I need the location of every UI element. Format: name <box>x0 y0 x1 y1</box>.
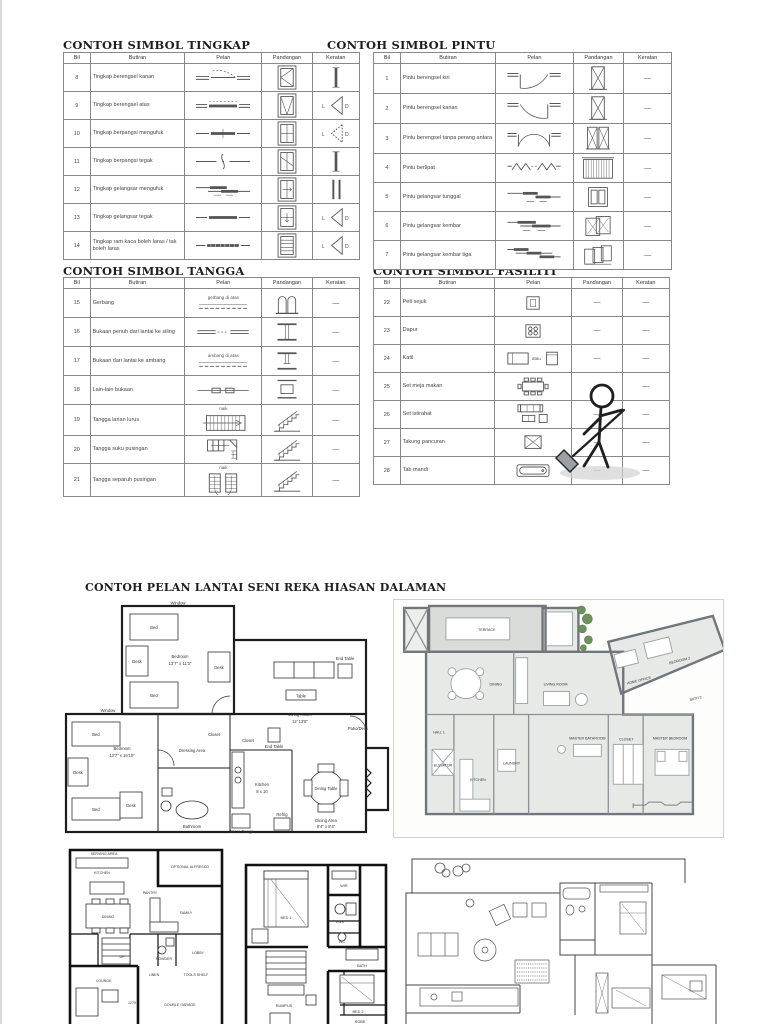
butiran-cell: Tingkap berengsel kanan <box>90 64 185 92</box>
header-row: BilButiranPelanPandanganKeratan <box>64 53 360 64</box>
svg-text:FAMILY: FAMILY <box>180 911 193 915</box>
butiran-cell: Gerbang <box>90 289 185 318</box>
table-row: 15Gerbanggerbang di atas— <box>64 289 360 318</box>
section-bar2-icon <box>321 178 351 201</box>
door-elev-slide1-icon <box>586 184 610 210</box>
svg-text:TOOLS SHELF: TOOLS SHELF <box>184 973 210 977</box>
door-elev-accordion-icon <box>581 155 615 181</box>
pelan-cell <box>185 92 262 120</box>
tingkap-heading: CONTOH SIMBOL TINGKAP <box>63 38 250 52</box>
pandangan-cell <box>262 436 312 464</box>
window-elev-casement-icon <box>276 65 298 90</box>
dash-value: — <box>574 299 619 306</box>
floorplan-house-upper: BED 1 WIR ENS WC BATH RUMPUS BED 2 ROBE … <box>240 855 392 1024</box>
column-header: Bil <box>374 278 401 289</box>
table-row: 2Pintu berengsel kanan— <box>374 94 672 124</box>
column-header: Keratan <box>312 278 359 289</box>
svg-text:D: D <box>345 104 349 110</box>
svg-text:8'4" x 8'4": 8'4" x 8'4" <box>317 824 336 829</box>
pelan-cell <box>496 183 573 212</box>
pelan-cell <box>496 154 573 183</box>
svg-text:Bed: Bed <box>150 625 158 630</box>
symbol-note: naik <box>219 465 227 470</box>
butiran-cell: Tangga suku pusingan <box>90 436 185 464</box>
dash-value: — <box>626 223 669 230</box>
pelan-cell: naik <box>185 464 262 497</box>
arch-elev-icon <box>274 290 300 316</box>
header-row: BilButiranPelanPandanganKeratan <box>374 53 672 64</box>
pelan-cell <box>185 318 262 347</box>
bil-cell: 12 <box>64 176 91 204</box>
svg-text:WC: WC <box>339 940 346 944</box>
svg-text:RUMPUS: RUMPUS <box>276 1004 293 1008</box>
keratan-cell: — <box>622 317 669 345</box>
keratan-cell: — <box>624 94 672 124</box>
svg-text:Closet: Closet <box>208 732 221 737</box>
pelan-cell <box>185 376 262 405</box>
svg-text:8 x 10: 8 x 10 <box>256 789 268 794</box>
column-header: Butiran <box>90 53 185 64</box>
svg-text:Desk: Desk <box>214 665 224 670</box>
bil-cell: 13 <box>64 204 91 232</box>
table-row: 20Tangga suku pusingan— <box>64 436 360 464</box>
bil-cell: 20 <box>64 436 91 464</box>
dash-value: — <box>315 417 357 424</box>
table-row: 7Pintu gelangsar kembar tiga— <box>374 241 672 270</box>
svg-text:Desk: Desk <box>73 770 83 775</box>
pelan-cell: ambang di atas <box>185 347 262 376</box>
svg-text:LAUNDRY: LAUNDRY <box>503 761 521 765</box>
svg-text:Dining Table: Dining Table <box>315 786 339 791</box>
table-row: 22Peti sejuk—— <box>374 289 670 317</box>
pandangan-cell <box>573 183 624 212</box>
table-row: 5Pintu gelangsar tunggal— <box>374 183 672 212</box>
document-page: CONTOH SIMBOL TINGKAP CONTOH SIMBOL PINT… <box>0 0 768 1024</box>
butiran-cell: Pintu gelangsar tunggal <box>400 183 495 212</box>
pelan-cell <box>496 241 573 270</box>
butiran-cell: Tingkap gelangsar mengufuk <box>90 176 185 204</box>
tangga-heading: CONTOH SIMBOL TANGGA <box>63 264 245 278</box>
dash-value: — <box>315 300 357 307</box>
svg-text:D: D <box>345 132 349 138</box>
pandangan-cell <box>573 94 624 124</box>
bil-cell: 8 <box>64 64 91 92</box>
pandangan-cell: — <box>572 289 622 317</box>
butiran-cell: Tingkap gelangsar tegak <box>90 204 185 232</box>
table-row: 12Tingkap gelangsar mengufuk <box>64 176 360 204</box>
opening-plan-icon <box>195 327 251 338</box>
plants <box>577 606 592 651</box>
bil-cell: 27 <box>374 429 401 457</box>
svg-text:LOBBY: LOBBY <box>192 951 205 955</box>
keratan-cell: — <box>624 124 672 154</box>
svg-text:MASTER BEDROOM: MASTER BEDROOM <box>653 736 687 740</box>
pandangan-cell <box>262 405 312 436</box>
svg-text:End Table: End Table <box>336 656 355 661</box>
keratan-cell: — <box>312 289 359 318</box>
bil-cell: 21 <box>64 464 91 497</box>
column-header: Butiran <box>400 278 495 289</box>
window-elev-tophung-icon <box>276 93 298 118</box>
column-header: Pelan <box>495 278 572 289</box>
column-header: Pandangan <box>573 53 624 64</box>
pelan-cell: gerbang di atas <box>185 289 262 318</box>
dash-value: — <box>574 327 619 334</box>
pandangan-cell <box>262 92 312 120</box>
bil-cell: 16 <box>64 318 91 347</box>
column-header: Pandangan <box>572 278 622 289</box>
column-header: Bil <box>64 278 91 289</box>
bil-cell: 28 <box>374 457 401 485</box>
svg-text:1270: 1270 <box>128 1001 136 1005</box>
butiran-cell: Tab mandi <box>400 457 495 485</box>
dashed-line-plan-icon <box>195 301 251 312</box>
window-casement-plan-icon <box>195 69 251 86</box>
svg-text:BED 1: BED 1 <box>281 916 292 920</box>
bil-cell: 6 <box>374 212 401 241</box>
svg-text:DINING: DINING <box>489 683 502 687</box>
keratan-cell: — <box>312 405 359 436</box>
pandangan-cell <box>262 204 312 232</box>
dash-value: — <box>315 358 357 365</box>
keratan-cell: LD <box>312 204 359 232</box>
column-header: Bil <box>64 53 91 64</box>
keratan-cell: — <box>624 212 672 241</box>
pelan-cell: naik <box>185 405 262 436</box>
butiran-cell: Pintu berengsel kiri <box>400 64 495 94</box>
door-elev-x-icon <box>588 65 608 92</box>
svg-text:Bedroom: Bedroom <box>172 654 190 659</box>
pelan-cell <box>185 176 262 204</box>
column-header: Pelan <box>496 53 573 64</box>
butiran-cell: Set meja makan <box>400 373 495 401</box>
svg-text:12' 13'8": 12' 13'8" <box>292 719 308 724</box>
tangga-symbol-table: BilButiranPelanPandanganKeratan15Gerbang… <box>63 277 360 497</box>
svg-text:LOUNGE: LOUNGE <box>96 979 112 983</box>
svg-text:Bathroom: Bathroom <box>183 824 202 829</box>
butiran-cell: Bukaan dari lantai ke ambang <box>90 347 185 376</box>
header-row: BilButiranPelanPandanganKeratan <box>374 278 670 289</box>
svg-text:Table: Table <box>296 694 307 699</box>
butiran-cell: Tingkap berengsel atas <box>90 92 185 120</box>
keratan-cell: LD <box>312 120 359 148</box>
table-row: 3Pintu berengsel tanpa perang antara— <box>374 124 672 154</box>
column-header: Pandangan <box>262 278 312 289</box>
keratan-cell <box>312 148 359 176</box>
butiran-cell: Lain-lain bukaan <box>90 376 185 405</box>
bil-cell: 11 <box>64 148 91 176</box>
bil-cell: 7 <box>374 241 401 270</box>
opening-sill-elev-icon <box>274 348 300 374</box>
door-swing-left-plan-icon <box>506 68 562 90</box>
svg-text:Desk: Desk <box>132 659 142 664</box>
svg-text:Dining Area: Dining Area <box>315 818 337 823</box>
section-swing-icon: LD <box>321 94 351 117</box>
butiran-cell: Tingkap berpangsi mengufuk <box>90 120 185 148</box>
column-header: Butiran <box>400 53 495 64</box>
pelan-cell <box>185 148 262 176</box>
pandangan-cell <box>262 232 312 260</box>
keratan-cell: — <box>624 154 672 183</box>
stairs-half-plan-icon <box>202 471 244 495</box>
table-row: 17Bukaan dari lantai ke ambangambang di … <box>64 347 360 376</box>
header-row: BilButiranPelanPandanganKeratan <box>64 278 360 289</box>
bil-cell: 17 <box>64 347 91 376</box>
svg-text:D: D <box>345 216 349 222</box>
column-header: Keratan <box>622 278 669 289</box>
pelan-cell <box>185 120 262 148</box>
svg-text:Window: Window <box>171 601 187 606</box>
table-row: 14Tingkap ram kaca boleh laras / tak bol… <box>64 232 360 260</box>
svg-text:MASTER BATHROOM: MASTER BATHROOM <box>569 736 605 740</box>
window-louvre-plan-icon <box>195 237 251 254</box>
dash-value: — <box>625 299 667 306</box>
dash-value: — <box>626 165 669 172</box>
pandangan-cell <box>573 212 624 241</box>
window-elev-pivot-v-icon <box>276 149 298 174</box>
butiran-cell: Peti sejuk <box>400 289 495 317</box>
pandangan-cell <box>573 241 624 270</box>
section-swing-icon: LD <box>321 234 351 257</box>
svg-text:ELEVATOR: ELEVATOR <box>434 763 453 767</box>
keratan-cell: — <box>312 436 359 464</box>
door-elev-x-icon <box>588 95 608 122</box>
door-elev-slide3-icon <box>583 242 613 268</box>
table-row: 6Pintu gelangsar kembar— <box>374 212 672 241</box>
balcony-plants <box>435 863 474 907</box>
butiran-cell: Tangga larian lurus <box>90 405 185 436</box>
window-elev-pivot-h-icon <box>276 121 298 146</box>
dash-value: — <box>626 75 669 82</box>
keratan-cell: — <box>624 64 672 94</box>
butiran-cell: Takung pancuran <box>400 429 495 457</box>
section-bar-icon <box>321 66 351 89</box>
stairs-straight-plan-icon <box>195 412 251 434</box>
door-slide-single-plan-icon <box>506 186 562 208</box>
table-row: 4Pintu berlipat— <box>374 154 672 183</box>
pelan-cell <box>495 289 572 317</box>
bil-cell: 14 <box>64 232 91 260</box>
bil-cell: 23 <box>374 317 401 345</box>
table-row: 1Pintu berengsel kiri— <box>374 64 672 94</box>
bil-cell: 1 <box>374 64 401 94</box>
svg-text:LINEN: LINEN <box>149 973 160 977</box>
pandangan-cell <box>262 347 312 376</box>
floorplan-lineart <box>400 845 722 1024</box>
stairs-elev-icon <box>273 437 301 462</box>
bil-cell: 19 <box>64 405 91 436</box>
door-slide-triple-plan-icon <box>506 244 562 266</box>
svg-text:Patio/Deck: Patio/Deck <box>348 726 369 731</box>
svg-text:LIVING ROOM: LIVING ROOM <box>544 683 568 687</box>
column-header: Keratan <box>624 53 672 64</box>
stairs-elev-icon <box>273 468 301 493</box>
pelan-cell <box>495 317 572 345</box>
pintu-symbol-table: BilButiranPelanPandanganKeratan1Pintu be… <box>373 52 672 270</box>
pandangan-cell <box>573 64 624 94</box>
symbol-note: gerbang di atas <box>208 295 239 300</box>
pelan-cell <box>185 64 262 92</box>
window-pivot-v-plan-icon <box>195 153 251 170</box>
pandangan-cell <box>262 176 312 204</box>
bil-cell: 24 <box>374 345 401 373</box>
column-header: Pelan <box>185 278 262 289</box>
dash-value: — <box>626 252 669 259</box>
door-double-swing-plan-icon <box>506 128 562 150</box>
pintu-heading: CONTOH SIMBOL PINTU <box>327 38 496 52</box>
svg-text:Bed: Bed <box>92 732 100 737</box>
svg-text:PANTRY: PANTRY <box>143 891 158 895</box>
bil-cell: 5 <box>374 183 401 212</box>
pandangan-cell <box>573 154 624 183</box>
butiran-cell: Pintu berengsel kanan <box>400 94 495 124</box>
svg-text:End Table: End Table <box>265 744 284 749</box>
keratan-cell: LD <box>312 232 359 260</box>
svg-text:Dressing Area: Dressing Area <box>179 748 206 753</box>
keratan-cell: — <box>622 289 669 317</box>
svg-text:CLOSET: CLOSET <box>619 737 634 741</box>
svg-text:Window: Window <box>101 708 117 713</box>
window-pivot-h-plan-icon <box>195 125 251 142</box>
butiran-cell: Katil <box>400 345 495 373</box>
keratan-cell: LD <box>312 92 359 120</box>
svg-text:BATH 2: BATH 2 <box>689 695 702 702</box>
door-elev-double-icon <box>585 125 611 152</box>
column-header: Pandangan <box>262 53 312 64</box>
svg-text:KITCHEN: KITCHEN <box>470 778 486 782</box>
svg-text:DOUBLE GARAGE: DOUBLE GARAGE <box>164 1003 196 1007</box>
svg-text:HALL 1: HALL 1 <box>433 730 445 734</box>
svg-text:Refrig: Refrig <box>276 812 288 817</box>
svg-text:Desk: Desk <box>126 803 136 808</box>
svg-text:ENS: ENS <box>336 920 344 924</box>
dash-value: — <box>315 477 357 484</box>
floorplan-apartment-bw: Window Window Bed Bed Desk Desk Bedroom … <box>62 600 392 835</box>
pandangan-cell <box>262 289 312 318</box>
pelan-cell <box>185 204 262 232</box>
pandangan-cell <box>262 120 312 148</box>
floorplan-rendered-frame: TERRACE DINING LIVING ROOM HOME OFFICE B… <box>393 599 724 838</box>
svg-text:13'7" x 11'3": 13'7" x 11'3" <box>169 661 192 666</box>
svg-text:POWDER: POWDER <box>156 957 173 961</box>
page-edge-left <box>0 0 2 1024</box>
butiran-cell: Bukaan penuh dari lantai ke siling <box>90 318 185 347</box>
section-pivot-icon: LD <box>321 122 351 145</box>
pelan-cell <box>185 232 262 260</box>
pandangan-cell <box>573 124 624 154</box>
table-row: 13Tingkap gelangsar tegakLD <box>64 204 360 232</box>
keratan-cell: — <box>312 464 359 497</box>
svg-text:Closet: Closet <box>242 738 255 743</box>
butiran-cell: Set istirahat <box>400 401 495 429</box>
keratan-cell: — <box>624 241 672 270</box>
svg-text:Bed: Bed <box>150 693 158 698</box>
door-slide-double-plan-icon <box>506 215 562 237</box>
section-bar-icon <box>321 150 351 173</box>
dash-value: — <box>315 329 357 336</box>
table-row: 10Tingkap berpangsi mengufukLD <box>64 120 360 148</box>
bil-cell: 4 <box>374 154 401 183</box>
svg-text:BED 2: BED 2 <box>353 1010 364 1014</box>
stick-figure-shovel-illustration <box>540 360 670 485</box>
svg-text:TERRACE: TERRACE <box>478 628 496 632</box>
furniture <box>68 614 352 830</box>
butiran-cell: Pintu berlipat <box>400 154 495 183</box>
pelan-cell <box>496 94 573 124</box>
bil-cell: 15 <box>64 289 91 318</box>
pandangan-cell <box>262 318 312 347</box>
table-row: 16Bukaan penuh dari lantai ke siling— <box>64 318 360 347</box>
fridge-plan-icon <box>524 295 542 311</box>
table-row: 19Tangga larian lurusnaik— <box>64 405 360 436</box>
svg-text:13'7" x 16'10": 13'7" x 16'10" <box>109 753 135 758</box>
keratan-cell <box>312 176 359 204</box>
keratan-cell: — <box>312 318 359 347</box>
dash-value: — <box>626 105 669 112</box>
column-header: Pelan <box>185 53 262 64</box>
dash-value: — <box>315 446 357 453</box>
bil-cell: 25 <box>374 373 401 401</box>
pandangan-cell <box>262 64 312 92</box>
dash-value: — <box>625 327 667 334</box>
window-elev-louvre-icon <box>276 233 298 258</box>
svg-text:Bed: Bed <box>92 807 100 812</box>
opening-other-elev-icon <box>274 377 300 403</box>
column-header: Bil <box>374 53 401 64</box>
door-swing-right-plan-icon <box>506 98 562 120</box>
bil-cell: 10 <box>64 120 91 148</box>
symbol-note: naik <box>219 406 227 411</box>
svg-text:Kitchen: Kitchen <box>255 782 270 787</box>
table-row: 11Tingkap berpangsi tegak <box>64 148 360 176</box>
opening-full-elev-icon <box>274 319 300 345</box>
butiran-cell: Pintu gelangsar kembar tiga <box>400 241 495 270</box>
bed-plan-icon <box>506 351 530 366</box>
pandangan-cell <box>262 148 312 176</box>
bil-cell: 9 <box>64 92 91 120</box>
svg-text:DINING: DINING <box>102 915 115 919</box>
window-elev-slide-v-icon <box>276 205 298 230</box>
window-sash-plan-icon <box>195 97 251 114</box>
dashed-line-plan-icon <box>195 359 251 370</box>
table-row: 21Tangga separuh pusingannaik— <box>64 464 360 497</box>
pandangan-cell <box>262 376 312 405</box>
svg-text:L: L <box>322 104 325 110</box>
keratan-cell: — <box>624 183 672 212</box>
floorplan-rendered: TERRACE DINING LIVING ROOM HOME OFFICE B… <box>394 600 723 837</box>
bil-cell: 3 <box>374 124 401 154</box>
butiran-cell: Tangga separuh pusingan <box>90 464 185 497</box>
plans-heading: CONTOH PELAN LANTAI SENI REKA HIASAN DAL… <box>85 581 446 594</box>
keratan-cell <box>312 64 359 92</box>
dash-value: — <box>315 387 357 394</box>
table-row: 9Tingkap berengsel atasLD <box>64 92 360 120</box>
section-swing-icon: LD <box>321 206 351 229</box>
keratan-cell: — <box>312 347 359 376</box>
bil-cell: 22 <box>374 289 401 317</box>
door-elev-slide2-icon <box>584 213 612 239</box>
keratan-cell: — <box>312 376 359 405</box>
pelan-cell <box>496 64 573 94</box>
window-slide-v-plan-icon <box>195 209 251 226</box>
bil-cell: 26 <box>374 401 401 429</box>
svg-text:L: L <box>322 216 325 222</box>
butiran-cell: Tingkap berpangsi tegak <box>90 148 185 176</box>
butiran-cell: Pintu berengsel tanpa perang antara <box>400 124 495 154</box>
pelan-cell <box>496 212 573 241</box>
table-row: 23Dapur—— <box>374 317 670 345</box>
pandangan-cell: — <box>572 317 622 345</box>
